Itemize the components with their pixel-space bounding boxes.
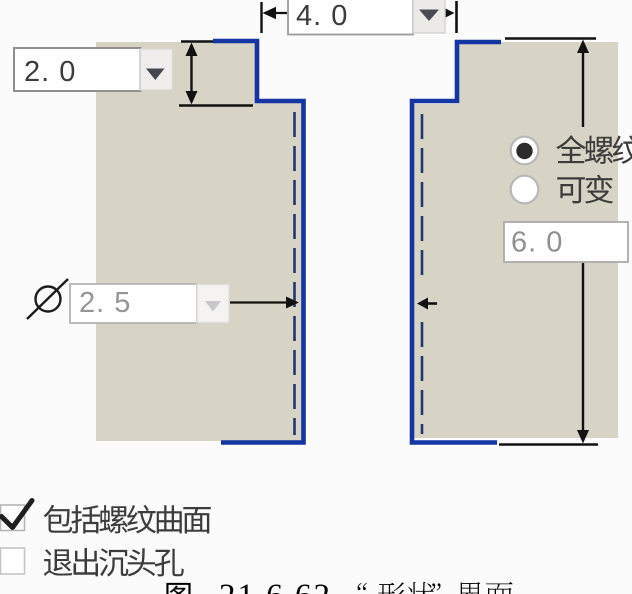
svg-text:2. 5: 2. 5 (79, 287, 131, 319)
svg-text:21.6.62: 21.6.62 (219, 578, 332, 594)
svg-text:4. 0: 4. 0 (296, 0, 348, 32)
svg-text:6. 0: 6. 0 (511, 227, 563, 259)
svg-text:2. 0: 2. 0 (24, 56, 76, 88)
